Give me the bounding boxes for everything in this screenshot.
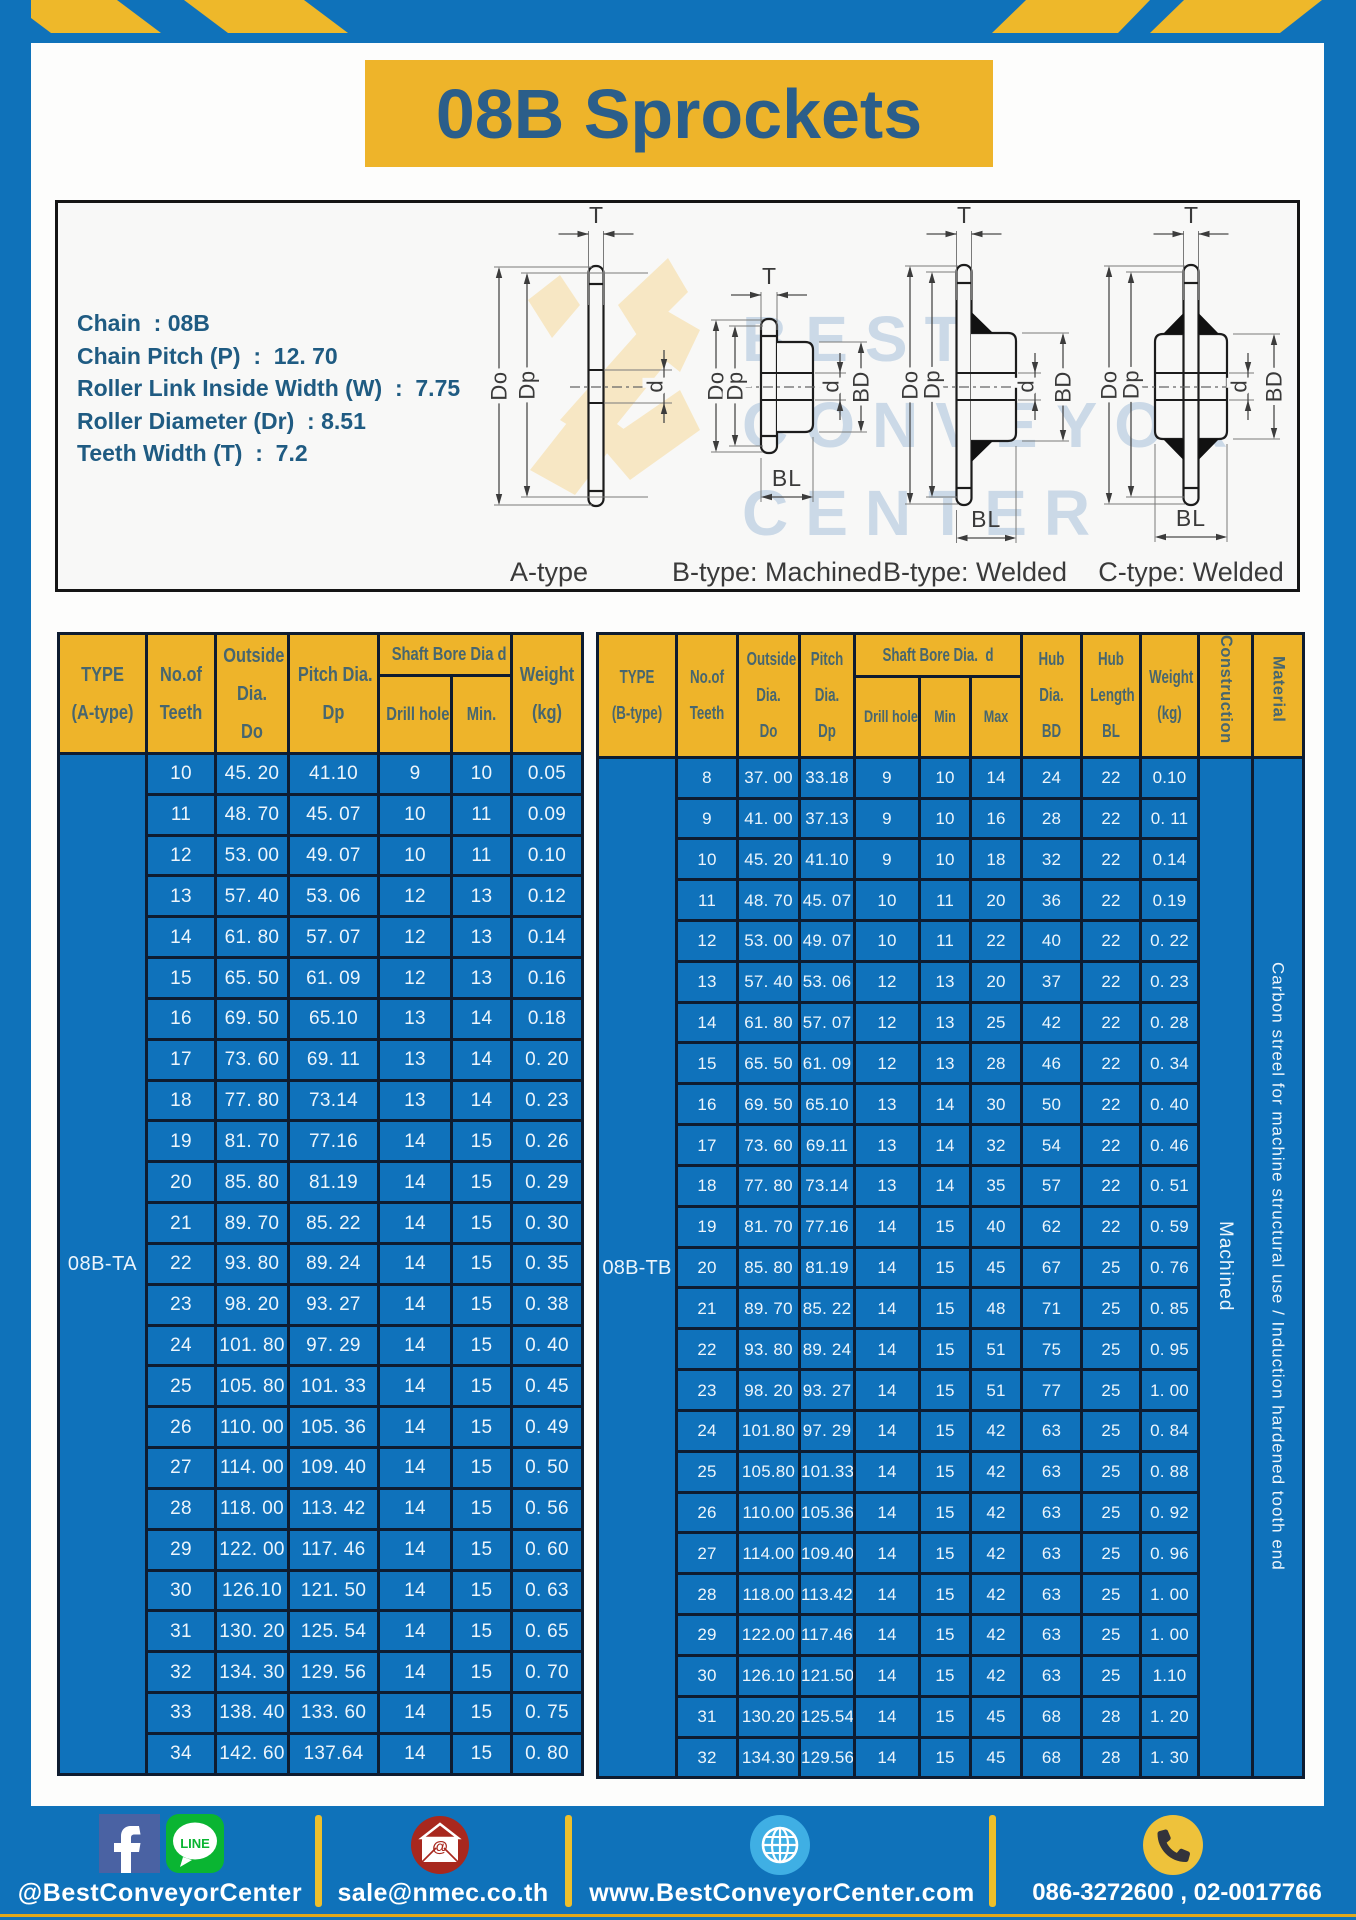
svg-text:Dp: Dp [920,370,945,399]
svg-text:BL: BL [971,506,1001,532]
svg-text:BD: BD [849,371,874,403]
svg-text:T: T [762,263,776,289]
svg-text:Do: Do [487,371,512,400]
svg-text:B-type: Machined: B-type: Machined [672,557,882,587]
svg-text:T: T [1184,202,1198,228]
svg-text:T: T [957,202,971,228]
svg-text:LINE: LINE [180,1836,210,1851]
svg-text:d: d [819,380,844,392]
svg-text:BD: BD [1262,371,1287,403]
svg-text:BD: BD [1051,371,1076,403]
svg-text:C-type: Welded: C-type: Welded [1098,557,1284,587]
svg-text:BL: BL [1176,505,1206,531]
svg-text:d: d [643,380,668,392]
svg-text:d: d [1227,380,1252,392]
svg-text:B-type: Welded: B-type: Welded [883,557,1067,587]
svg-text:Dp: Dp [723,371,748,400]
svg-text:d: d [1014,380,1039,392]
svg-text:A-type: A-type [510,557,588,587]
svg-text:T: T [589,202,603,228]
svg-text:Dp: Dp [1119,370,1144,399]
svg-text:Dp: Dp [515,370,540,399]
svg-text:@: @ [432,1839,448,1856]
svg-text:BL: BL [772,465,802,491]
